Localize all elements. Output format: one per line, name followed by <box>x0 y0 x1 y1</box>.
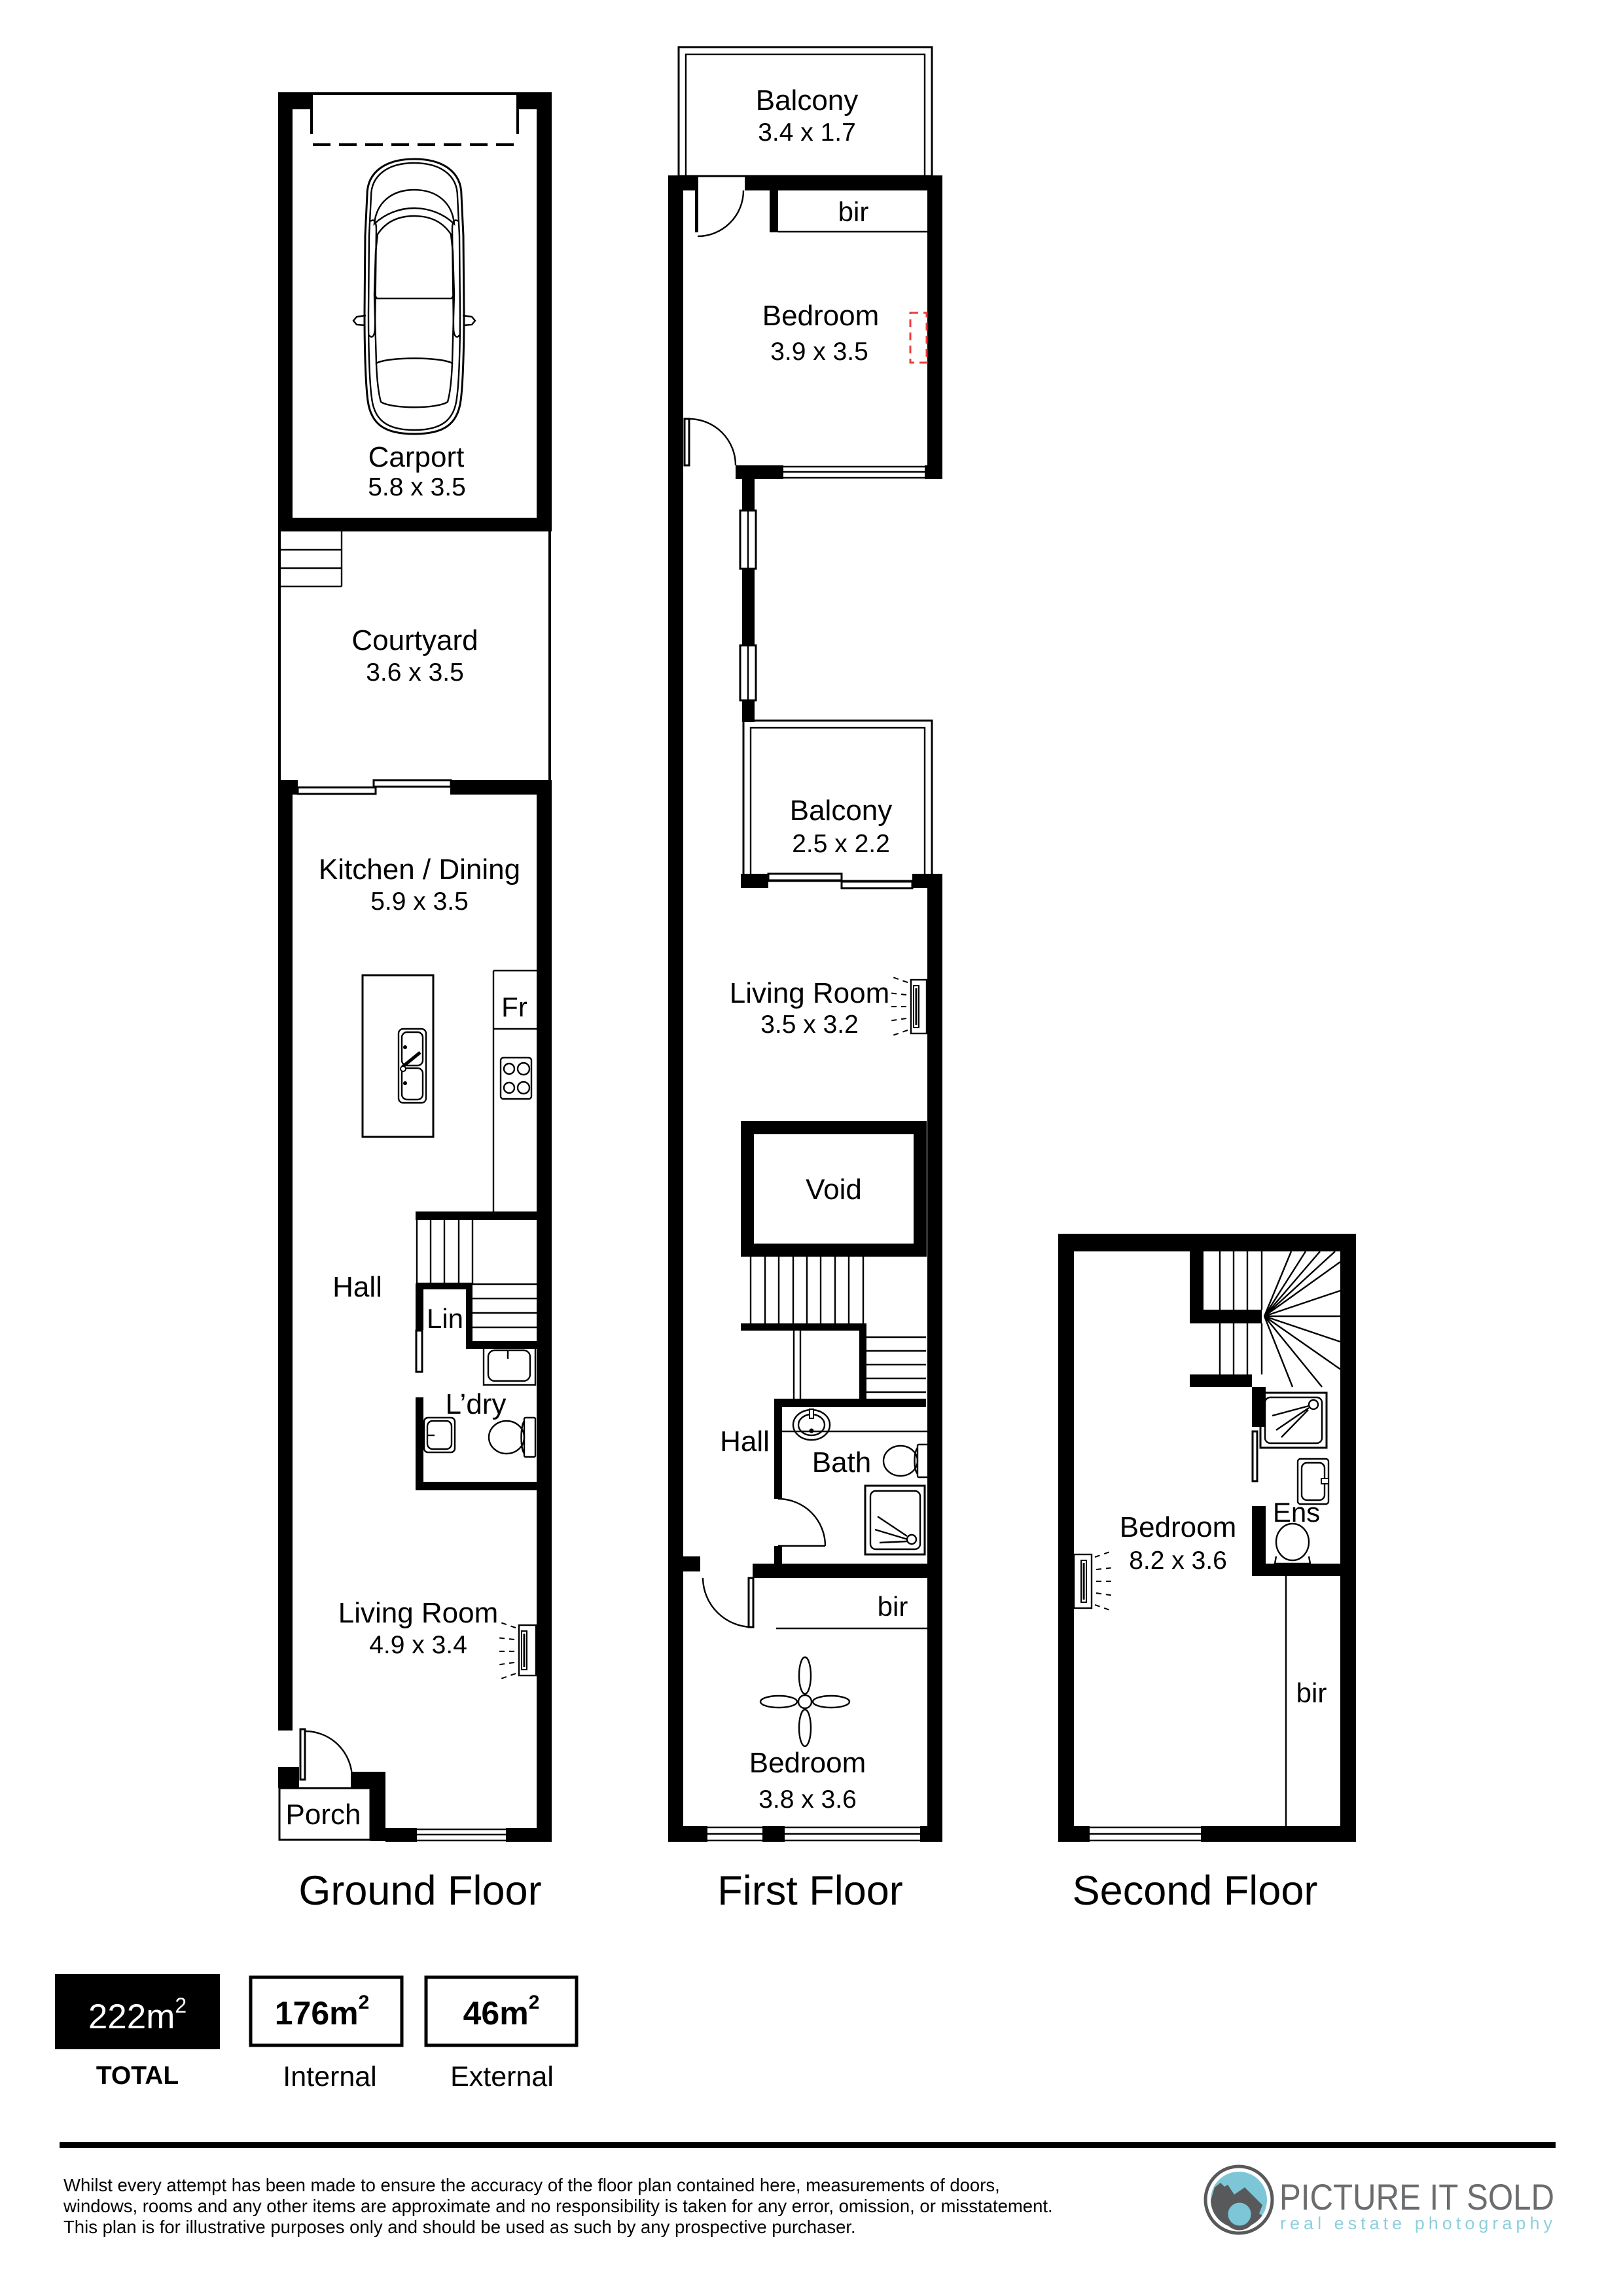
svg-text:3.5 x 3.2: 3.5 x 3.2 <box>760 1011 859 1039</box>
svg-text:Bedroom: Bedroom <box>749 1747 866 1779</box>
svg-text:Internal: Internal <box>283 2061 376 2092</box>
svg-text:TOTAL: TOTAL <box>96 2062 179 2090</box>
svg-text:46m2: 46m2 <box>463 1992 540 2032</box>
svg-text:Porch: Porch <box>286 1799 361 1831</box>
svg-text:3.4 x 1.7: 3.4 x 1.7 <box>758 118 856 147</box>
svg-text:L’dry: L’dry <box>446 1388 507 1420</box>
svg-text:Living Room: Living Room <box>730 977 890 1009</box>
svg-text:Second Floor: Second Floor <box>1073 1868 1318 1914</box>
svg-text:3.8 x 3.6: 3.8 x 3.6 <box>758 1785 857 1814</box>
svg-text:Ens: Ens <box>1273 1497 1320 1528</box>
svg-text:8.2 x 3.6: 8.2 x 3.6 <box>1129 1547 1227 1575</box>
svg-text:bir: bir <box>838 196 869 227</box>
svg-text:Hall: Hall <box>332 1271 382 1303</box>
svg-text:Lin: Lin <box>427 1303 463 1334</box>
svg-text:PICTURE IT SOLD: PICTURE IT SOLD <box>1279 2176 1554 2217</box>
svg-text:First Floor: First Floor <box>717 1868 903 1914</box>
svg-text:2.5 x 2.2: 2.5 x 2.2 <box>792 830 890 858</box>
svg-text:Living Room: Living Room <box>338 1597 499 1629</box>
svg-text:Courtyard: Courtyard <box>351 624 478 656</box>
svg-text:176m2: 176m2 <box>275 1992 370 2032</box>
svg-text:Balcony: Balcony <box>790 795 893 827</box>
svg-text:bir: bir <box>878 1591 908 1622</box>
svg-text:This plan is for illustrative: This plan is for illustrative purposes o… <box>63 2217 856 2237</box>
svg-text:External: External <box>450 2061 554 2092</box>
svg-text:4.9 x 3.4: 4.9 x 3.4 <box>369 1631 467 1659</box>
svg-text:Balcony: Balcony <box>756 84 859 117</box>
svg-text:5.9 x 3.5: 5.9 x 3.5 <box>370 888 469 916</box>
svg-text:real estate photography: real estate photography <box>1280 2214 1553 2233</box>
svg-text:Kitchen / Dining: Kitchen / Dining <box>319 853 520 886</box>
svg-text:Hall: Hall <box>720 1426 770 1458</box>
svg-text:Carport: Carport <box>368 441 465 473</box>
svg-text:222m2: 222m2 <box>88 1994 187 2036</box>
svg-text:Bedroom: Bedroom <box>1120 1511 1237 1543</box>
svg-text:Bedroom: Bedroom <box>762 300 880 332</box>
svg-text:Bath: Bath <box>812 1446 872 1479</box>
svg-text:Void: Void <box>806 1174 862 1206</box>
svg-text:5.8 x 3.5: 5.8 x 3.5 <box>368 473 466 501</box>
svg-text:3.9 x 3.5: 3.9 x 3.5 <box>770 338 868 366</box>
svg-text:Fr: Fr <box>501 992 527 1022</box>
svg-text:bir: bir <box>1296 1677 1327 1708</box>
svg-text:3.6 x 3.5: 3.6 x 3.5 <box>366 658 464 687</box>
svg-text:windows, rooms and any other i: windows, rooms and any other items are a… <box>63 2196 1053 2216</box>
svg-text:Ground Floor: Ground Floor <box>298 1868 541 1914</box>
svg-text:Whilst every attempt has been: Whilst every attempt has been made to en… <box>63 2175 1000 2195</box>
